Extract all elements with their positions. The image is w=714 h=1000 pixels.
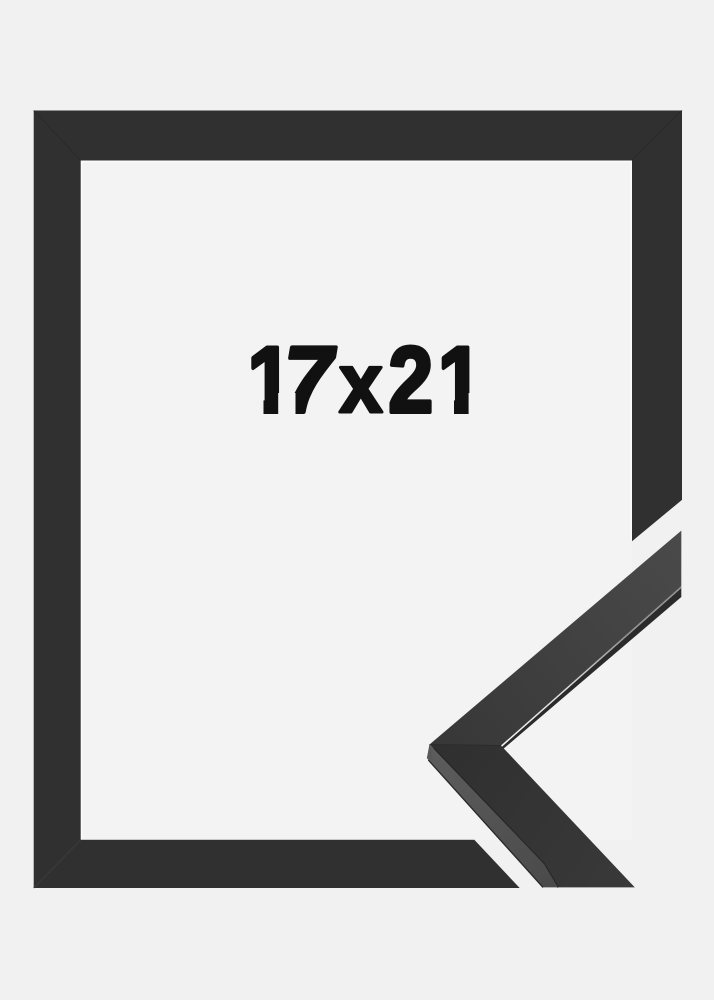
svg-text:2: 2 <box>388 327 433 432</box>
svg-text:x: x <box>339 337 383 430</box>
